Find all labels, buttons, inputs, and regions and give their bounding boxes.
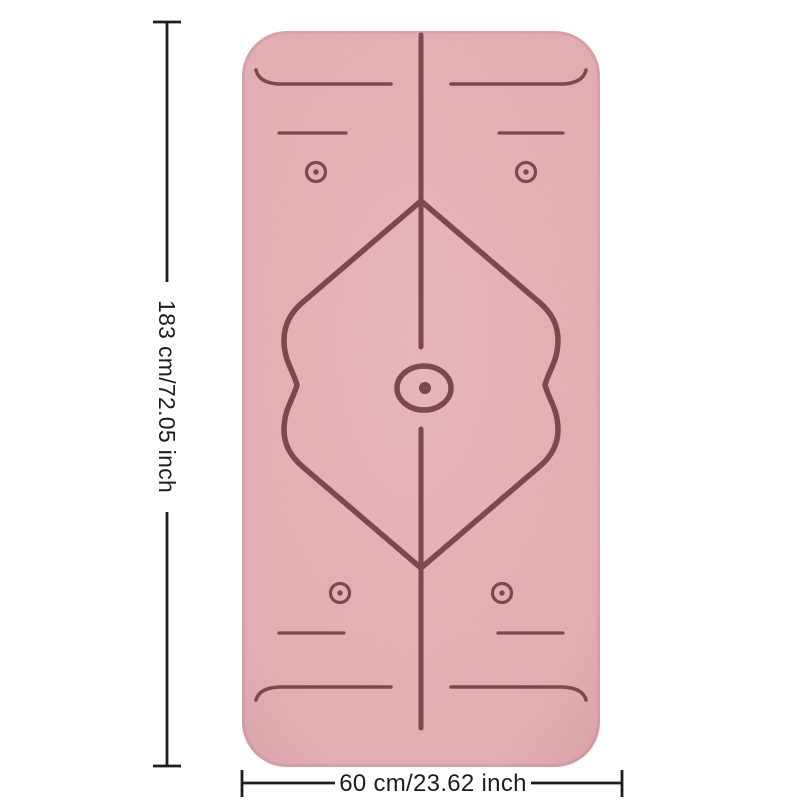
target-marker-bottom-left-dot [337, 590, 342, 595]
target-marker-top-left-dot [313, 169, 318, 174]
product-image-canvas: 183 cm/72.05 inch 60 cm/23.62 inch [0, 0, 800, 800]
height-dimension-label: 183 cm/72.05 inch [149, 282, 185, 512]
yoga-mat [242, 31, 600, 767]
target-marker-top-right-dot [523, 169, 528, 174]
yoga-mat-diagram [0, 0, 800, 800]
target-marker-bottom-right-dot [499, 590, 504, 595]
center-target-dot [419, 382, 431, 394]
width-dimension-label: 60 cm/23.62 inch [335, 768, 531, 800]
